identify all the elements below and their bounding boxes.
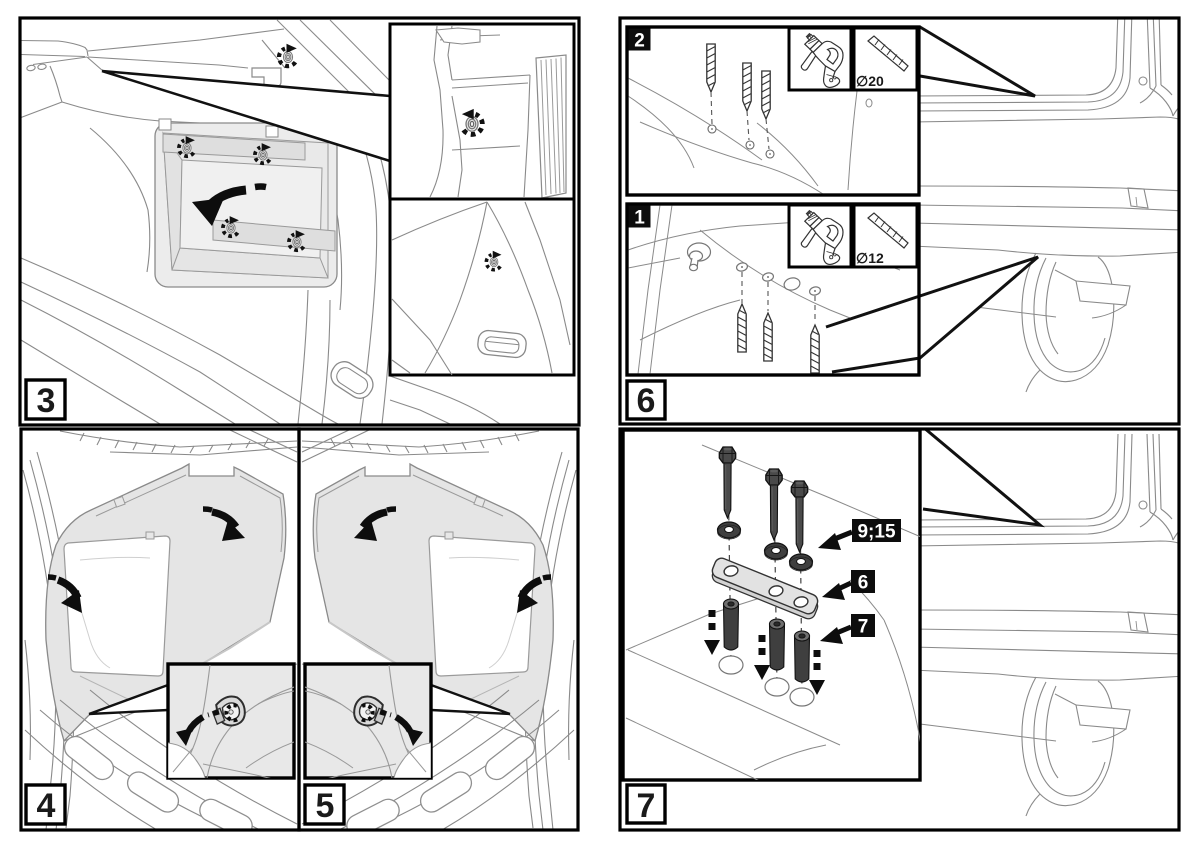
svg-text:5: 5 [316,787,335,825]
svg-text:∅20: ∅20 [856,73,884,89]
svg-text:3: 3 [37,382,56,420]
svg-text:6: 6 [858,573,869,594]
svg-text:6: 6 [637,382,656,420]
svg-text:2: 2 [634,31,645,52]
svg-text:∅12: ∅12 [856,250,884,266]
svg-text:9;15: 9;15 [857,522,895,543]
svg-text:4: 4 [37,787,56,825]
svg-text:1: 1 [634,208,645,229]
svg-text:7: 7 [858,617,869,638]
svg-text:7: 7 [637,787,656,825]
